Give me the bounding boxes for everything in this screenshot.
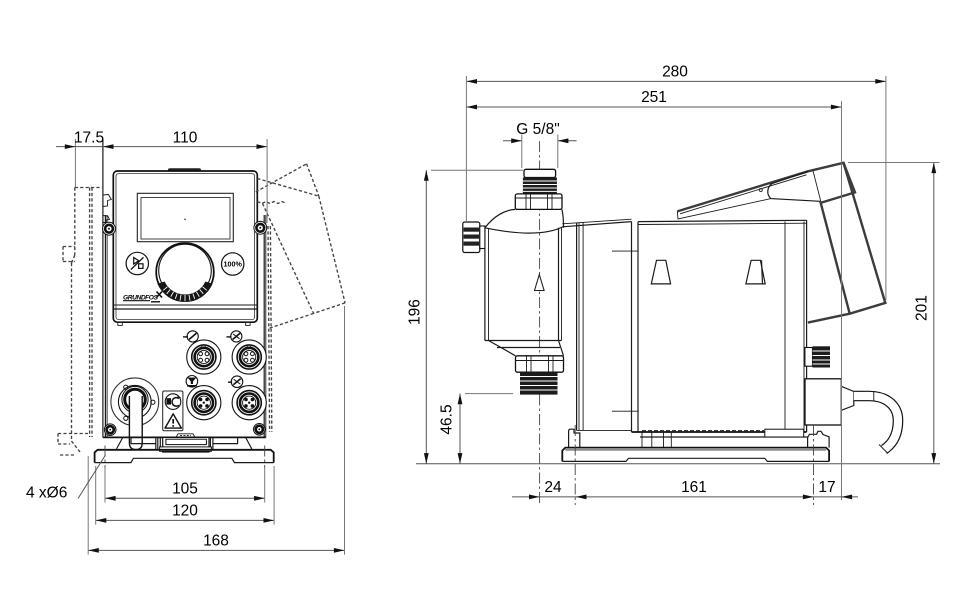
- svg-text:110: 110: [173, 130, 198, 147]
- svg-text:168: 168: [203, 533, 229, 550]
- svg-text:280: 280: [662, 64, 688, 81]
- svg-text:105: 105: [172, 481, 198, 498]
- svg-text:120: 120: [172, 503, 198, 520]
- svg-text:161: 161: [681, 479, 707, 496]
- svg-text:100%: 100%: [224, 260, 243, 269]
- svg-text:46.5: 46.5: [439, 404, 456, 434]
- svg-text:196: 196: [407, 299, 424, 325]
- svg-text:G 5/8": G 5/8": [516, 121, 559, 138]
- svg-text:24: 24: [544, 479, 562, 496]
- svg-text:201: 201: [914, 295, 931, 321]
- svg-text:251: 251: [641, 89, 667, 106]
- svg-text:4 xØ6: 4 xØ6: [26, 485, 67, 502]
- svg-text:17: 17: [818, 479, 835, 496]
- svg-text:17.5: 17.5: [74, 130, 104, 147]
